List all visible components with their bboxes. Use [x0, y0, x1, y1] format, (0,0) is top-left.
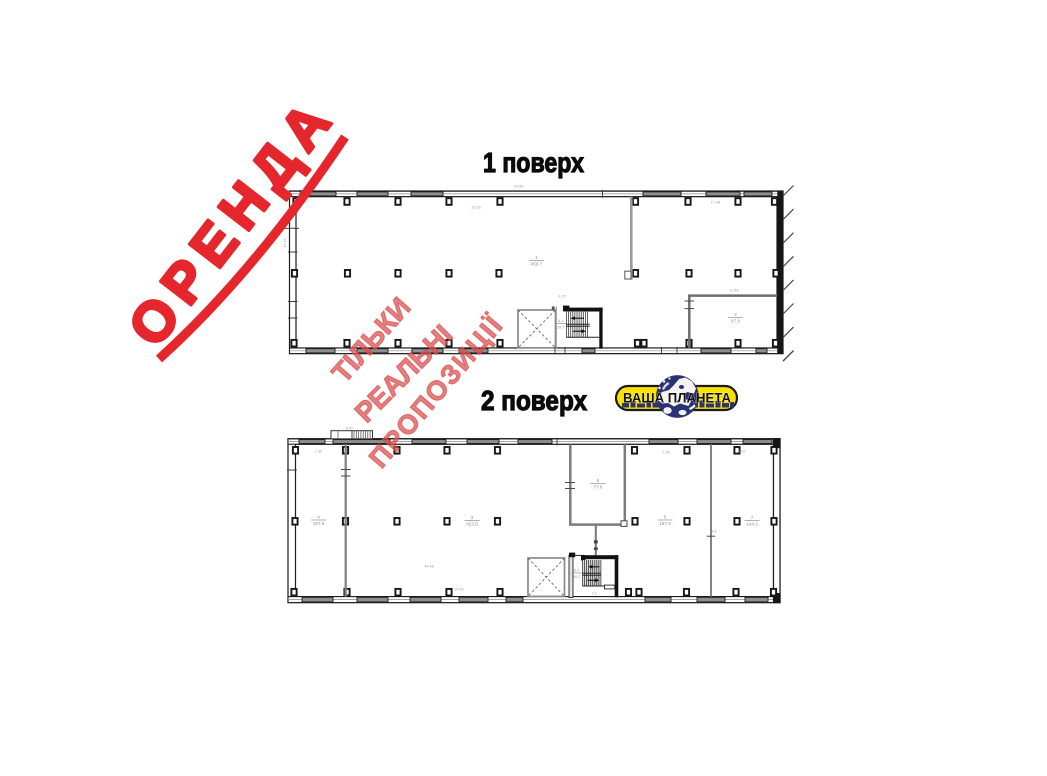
svg-text:2 поверх: 2 поверх — [481, 385, 588, 416]
svg-text:1.2: 1.2 — [592, 592, 597, 596]
svg-text:8.00: 8.00 — [346, 426, 353, 430]
svg-text:29.7: 29.7 — [557, 326, 564, 330]
svg-text:3: 3 — [471, 515, 474, 520]
svg-text:4.12: 4.12 — [738, 449, 745, 453]
svg-text:1: 1 — [535, 255, 538, 260]
svg-text:4.70: 4.70 — [559, 295, 566, 299]
svg-text:423.6: 423.6 — [466, 522, 478, 527]
svg-text:44.48: 44.48 — [424, 565, 434, 569]
svg-text:17.98: 17.98 — [711, 201, 721, 205]
svg-text:24.06: 24.06 — [514, 185, 524, 189]
svg-text:8-1: 8-1 — [558, 319, 564, 323]
svg-text:2: 2 — [734, 312, 737, 317]
svg-text:4.8: 4.8 — [712, 530, 717, 534]
svg-text:4: 4 — [317, 514, 320, 519]
svg-text:1.46: 1.46 — [315, 450, 322, 454]
svg-text:11.48: 11.48 — [729, 289, 738, 293]
svg-text:16.48: 16.48 — [455, 588, 464, 592]
svg-text:77.6: 77.6 — [594, 485, 603, 490]
svg-text:144.3: 144.3 — [746, 522, 758, 527]
svg-text:14.40: 14.40 — [283, 239, 287, 248]
svg-text:456.7: 456.7 — [531, 262, 543, 267]
svg-text:87.9: 87.9 — [731, 319, 740, 324]
svg-text:1 поверх: 1 поверх — [483, 147, 585, 178]
svg-text:7: 7 — [751, 515, 754, 520]
svg-text:8-2: 8-2 — [574, 568, 579, 572]
svg-text:ВАША ПЛАНЕТА: ВАША ПЛАНЕТА — [623, 391, 731, 406]
svg-text:5: 5 — [664, 514, 667, 519]
svg-text:187.9: 187.9 — [659, 521, 671, 526]
svg-text:2.96: 2.96 — [662, 451, 669, 455]
svg-text:16.2: 16.2 — [573, 575, 580, 579]
svg-text:31.06: 31.06 — [471, 206, 481, 210]
svg-text:6: 6 — [597, 478, 600, 483]
svg-text:197.9: 197.9 — [313, 521, 325, 526]
